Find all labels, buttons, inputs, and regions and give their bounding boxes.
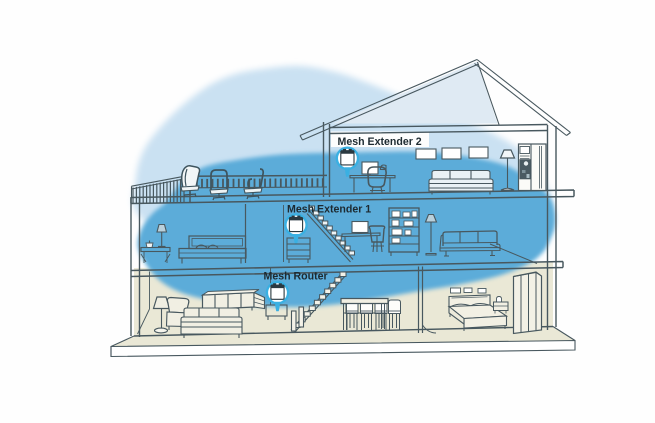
- svg-text:Mesh Router: Mesh Router: [264, 271, 328, 283]
- svg-text:Mesh Extender 2: Mesh Extender 2: [338, 136, 422, 148]
